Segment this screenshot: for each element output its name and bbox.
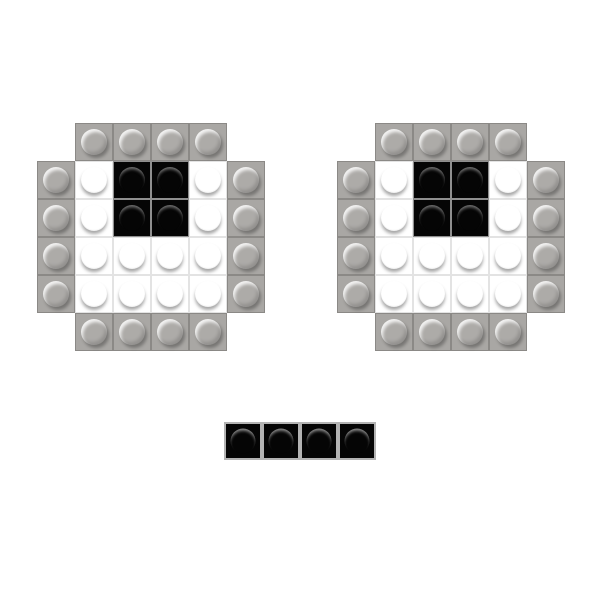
white-brick-tile [151, 275, 189, 313]
gray-brick-tile [227, 275, 265, 313]
brick-stud [119, 281, 145, 307]
white-brick-tile [113, 275, 151, 313]
brick-stud [419, 243, 445, 269]
white-brick-tile [189, 161, 227, 199]
brick-stud [195, 319, 221, 345]
brick-stud [345, 429, 370, 454]
white-brick-tile [151, 237, 189, 275]
brick-stud [419, 319, 445, 345]
gray-brick-tile [113, 123, 151, 161]
gray-brick-tile [189, 313, 227, 351]
white-brick-tile [375, 199, 413, 237]
brick-stud [495, 243, 521, 269]
brick-stud [157, 281, 183, 307]
brick-stud [119, 319, 145, 345]
gray-brick-tile [37, 161, 75, 199]
empty-cell [337, 123, 375, 161]
gray-brick-tile [337, 161, 375, 199]
white-brick-tile [189, 199, 227, 237]
gray-brick-tile [337, 275, 375, 313]
empty-cell [227, 313, 265, 351]
black-brick-tile [224, 422, 262, 460]
black-brick-tile [113, 199, 151, 237]
brick-stud [419, 281, 445, 307]
brick-stud [233, 205, 259, 231]
brick-stud [195, 205, 221, 231]
gray-brick-tile [151, 313, 189, 351]
brick-stud [81, 129, 107, 155]
brick-stud [81, 319, 107, 345]
brick-stud [495, 319, 521, 345]
brick-stud [43, 243, 69, 269]
left-eye-brick-grid [37, 123, 265, 351]
brick-stud [231, 429, 256, 454]
brick-stud [495, 129, 521, 155]
brick-stud [533, 167, 559, 193]
brick-stud [381, 281, 407, 307]
gray-brick-tile [451, 123, 489, 161]
brick-stud [81, 281, 107, 307]
brick-stud [157, 205, 183, 231]
gray-brick-tile [413, 313, 451, 351]
brick-stud [533, 243, 559, 269]
gray-brick-tile [75, 313, 113, 351]
brick-stud [195, 129, 221, 155]
brick-stud [381, 167, 407, 193]
black-brick-tile [113, 161, 151, 199]
gray-brick-tile [227, 199, 265, 237]
gray-brick-tile [337, 237, 375, 275]
empty-cell [227, 123, 265, 161]
white-brick-tile [375, 237, 413, 275]
empty-cell [337, 313, 375, 351]
brick-stud [233, 281, 259, 307]
white-brick-tile [413, 237, 451, 275]
brick-stud [457, 205, 483, 231]
brick-stud [381, 319, 407, 345]
mouth-brick-row [224, 422, 376, 460]
gray-brick-tile [375, 123, 413, 161]
gray-brick-tile [451, 313, 489, 351]
white-brick-tile [189, 237, 227, 275]
white-brick-tile [451, 275, 489, 313]
brick-stud [43, 167, 69, 193]
gray-brick-tile [527, 199, 565, 237]
brick-stud [343, 167, 369, 193]
brick-stud [533, 281, 559, 307]
brick-stud [343, 281, 369, 307]
brick-stud [119, 243, 145, 269]
gray-brick-tile [113, 313, 151, 351]
brick-stud [157, 319, 183, 345]
brick-stud [195, 167, 221, 193]
brick-stud [495, 205, 521, 231]
white-brick-tile [113, 237, 151, 275]
brick-stud [419, 129, 445, 155]
gray-brick-tile [227, 161, 265, 199]
black-brick-tile [451, 161, 489, 199]
brick-stud [419, 167, 445, 193]
black-brick-tile [300, 422, 338, 460]
black-brick-tile [151, 161, 189, 199]
brick-stud [157, 243, 183, 269]
brick-stud [381, 129, 407, 155]
brick-stud [457, 281, 483, 307]
brick-stud [157, 129, 183, 155]
brick-stud [343, 243, 369, 269]
brick-stud [269, 429, 294, 454]
white-brick-tile [75, 275, 113, 313]
brick-stud [457, 167, 483, 193]
gray-brick-tile [75, 123, 113, 161]
brick-stud [43, 205, 69, 231]
brick-stud [381, 205, 407, 231]
brick-stud [81, 167, 107, 193]
gray-brick-tile [527, 237, 565, 275]
right-eye-brick-grid [337, 123, 565, 351]
black-brick-tile [151, 199, 189, 237]
empty-cell [527, 123, 565, 161]
empty-cell [37, 313, 75, 351]
white-brick-tile [75, 161, 113, 199]
white-brick-tile [75, 199, 113, 237]
gray-brick-tile [375, 313, 413, 351]
brick-stud [119, 167, 145, 193]
white-brick-tile [489, 237, 527, 275]
gray-brick-tile [189, 123, 227, 161]
gray-brick-tile [37, 199, 75, 237]
gray-brick-tile [527, 161, 565, 199]
gray-brick-tile [489, 123, 527, 161]
white-brick-tile [451, 237, 489, 275]
white-brick-tile [75, 237, 113, 275]
brick-stud [457, 319, 483, 345]
brick-stud [233, 167, 259, 193]
gray-brick-tile [337, 199, 375, 237]
black-brick-tile [338, 422, 376, 460]
brick-stud [381, 243, 407, 269]
gray-brick-tile [227, 237, 265, 275]
black-brick-tile [413, 199, 451, 237]
white-brick-tile [489, 199, 527, 237]
brick-stud [43, 281, 69, 307]
brick-stud [495, 167, 521, 193]
empty-cell [37, 123, 75, 161]
black-brick-tile [413, 161, 451, 199]
brick-stud [457, 129, 483, 155]
brick-stud [81, 205, 107, 231]
white-brick-tile [375, 161, 413, 199]
brick-stud [533, 205, 559, 231]
gray-brick-tile [489, 313, 527, 351]
gray-brick-tile [151, 123, 189, 161]
gray-brick-tile [37, 275, 75, 313]
gray-brick-tile [413, 123, 451, 161]
white-brick-tile [189, 275, 227, 313]
white-brick-tile [489, 275, 527, 313]
brick-stud [233, 243, 259, 269]
brick-stud [457, 243, 483, 269]
white-brick-tile [375, 275, 413, 313]
black-brick-tile [262, 422, 300, 460]
brick-stud [119, 205, 145, 231]
empty-cell [527, 313, 565, 351]
brick-stud [495, 281, 521, 307]
brick-stud [343, 205, 369, 231]
brick-stud [419, 205, 445, 231]
gray-brick-tile [527, 275, 565, 313]
brick-stud [195, 243, 221, 269]
white-brick-tile [413, 275, 451, 313]
brick-stud [119, 129, 145, 155]
brick-stud [81, 243, 107, 269]
brick-stud [195, 281, 221, 307]
brick-stud [157, 167, 183, 193]
black-brick-tile [451, 199, 489, 237]
brick-face-canvas: { "palette": { "page_bg": "#ffffff", "gr… [0, 0, 600, 600]
brick-stud [307, 429, 332, 454]
gray-brick-tile [37, 237, 75, 275]
white-brick-tile [489, 161, 527, 199]
